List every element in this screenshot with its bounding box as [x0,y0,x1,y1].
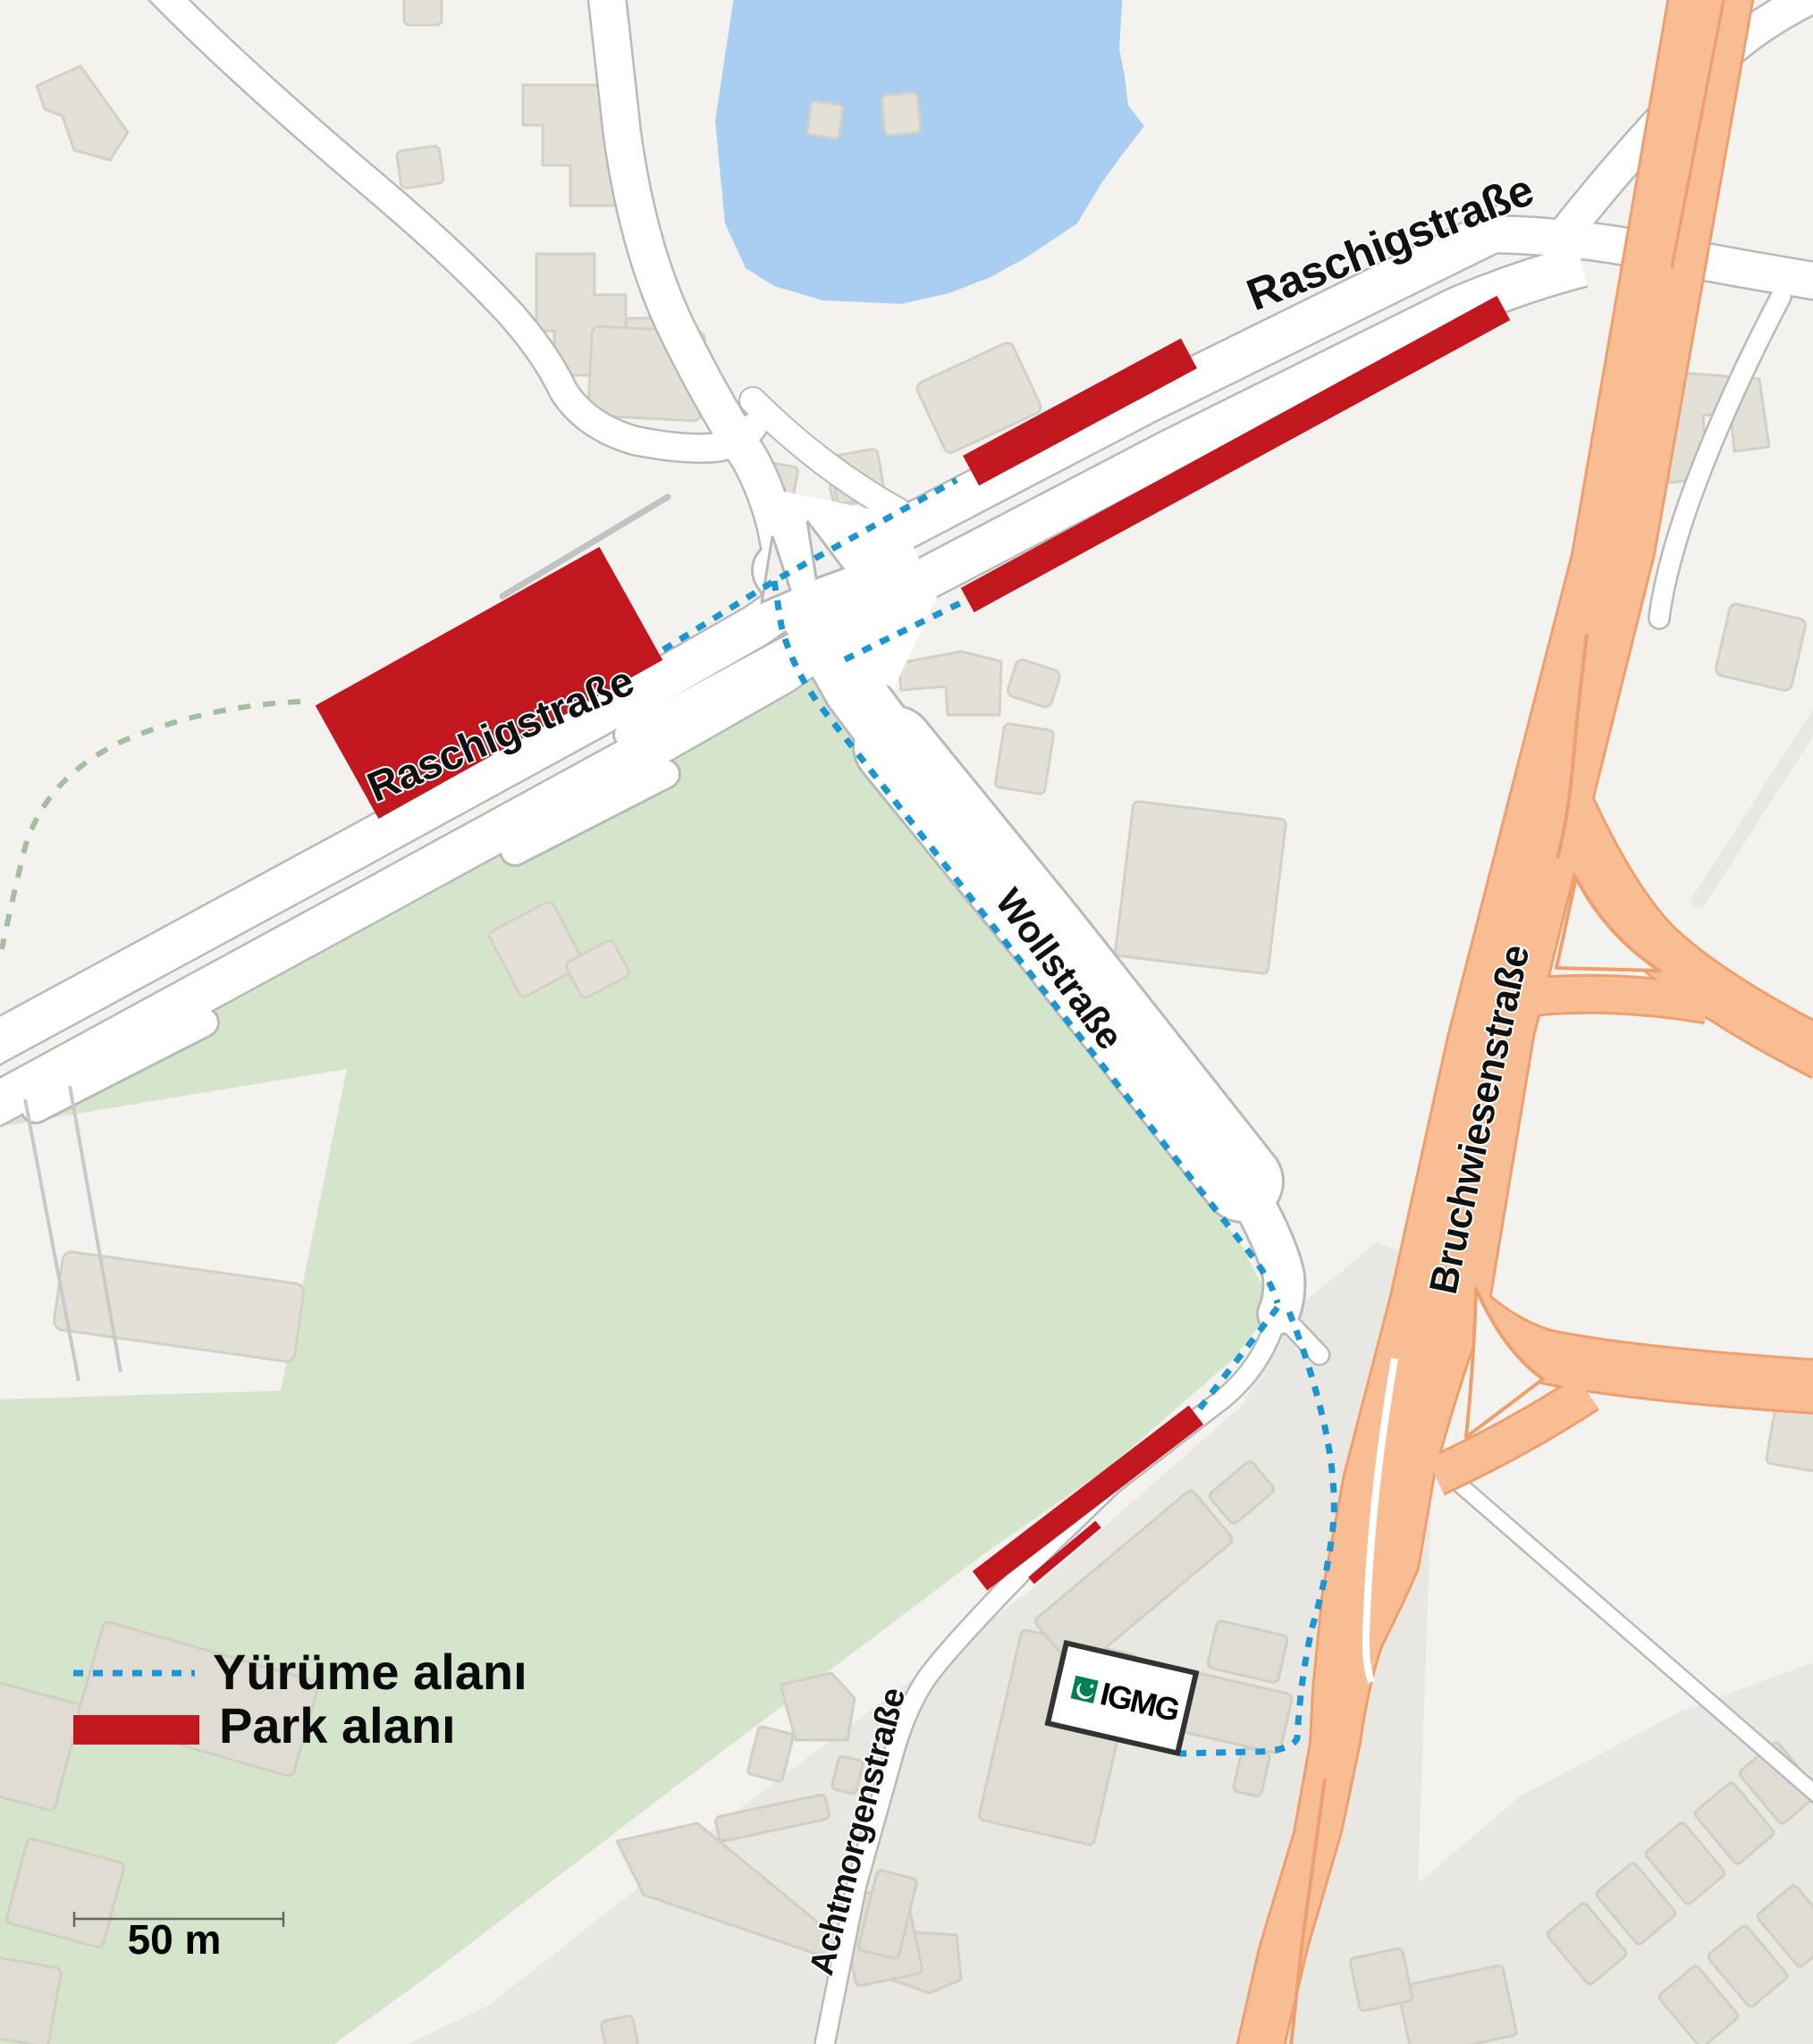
svg-text:Yürüme alanı: Yürüme alanı [213,1644,527,1700]
svg-text:Park alanı: Park alanı [219,1697,456,1754]
svg-text:50 m: 50 m [128,1916,222,1963]
